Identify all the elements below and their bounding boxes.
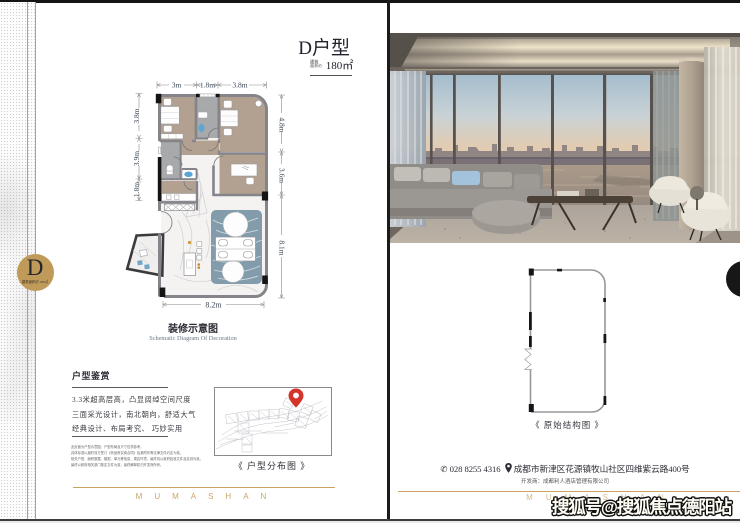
svg-text:3.9m: 3.9m (132, 151, 141, 166)
svg-text:3.8m: 3.8m (132, 108, 141, 123)
svg-text:3.8m: 3.8m (232, 81, 247, 90)
svg-text:8.1m: 8.1m (278, 240, 287, 255)
svg-text:1.8m: 1.8m (132, 182, 141, 197)
svg-text:8.2m: 8.2m (205, 301, 222, 310)
svg-text:1.8m: 1.8m (200, 81, 215, 90)
svg-text:3m: 3m (172, 81, 182, 90)
svg-text:4.8m: 4.8m (278, 117, 287, 132)
svg-text:3.6m: 3.6m (278, 168, 287, 183)
